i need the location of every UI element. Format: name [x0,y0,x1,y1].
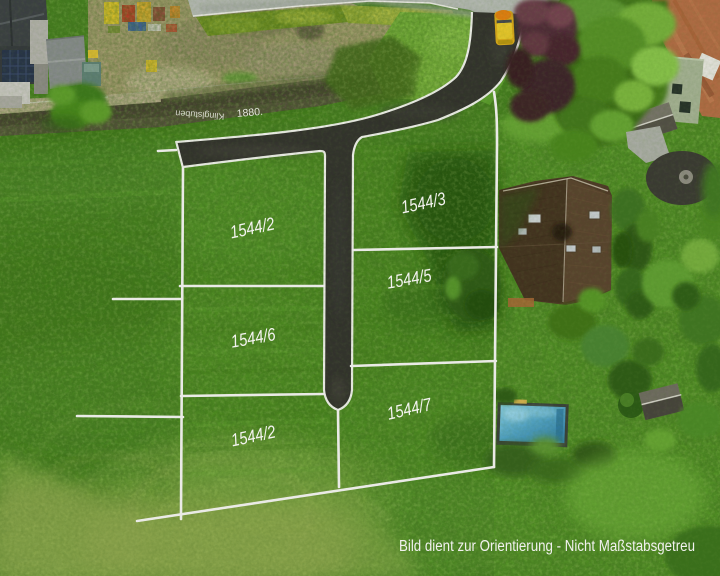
svg-text:Bild dient zur Orientierung -: Bild dient zur Orientierung - Nicht Maßs… [399,538,695,555]
